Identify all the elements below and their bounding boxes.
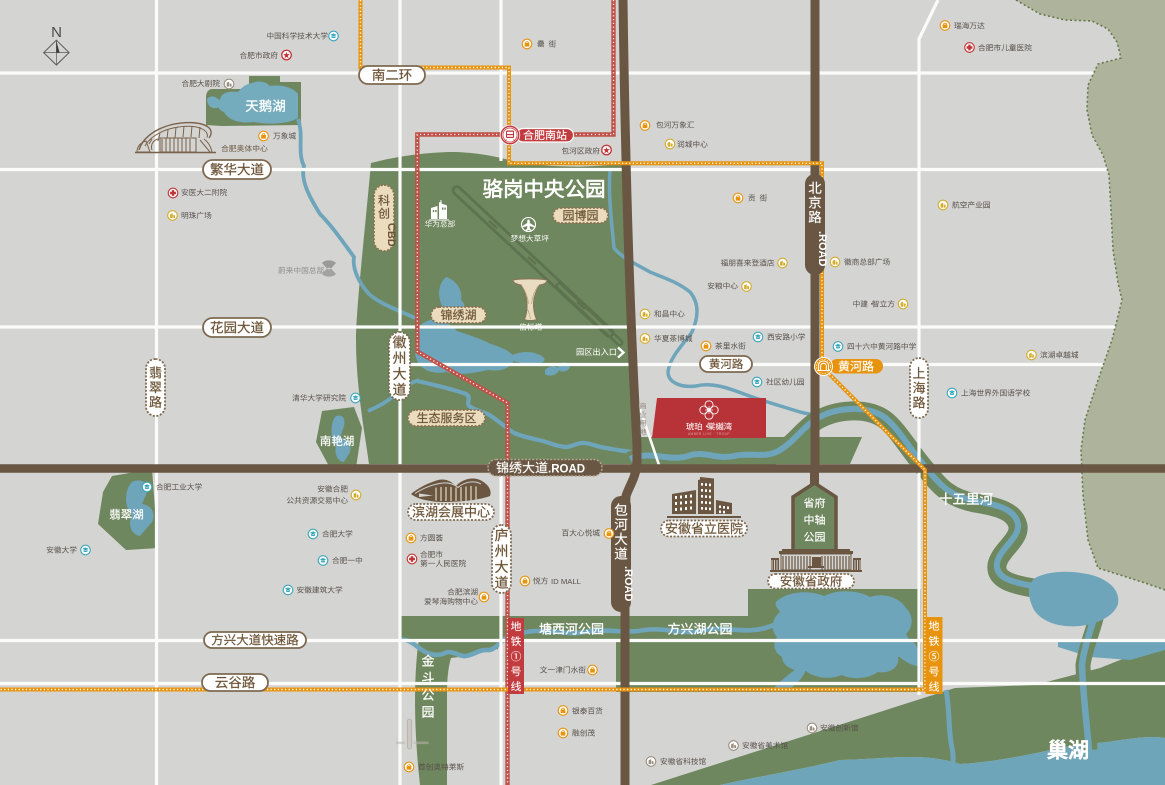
svg-text:AMBER LIVE · TROUP: AMBER LIVE · TROUP xyxy=(688,432,730,436)
svg-text:.ROAD: .ROAD xyxy=(548,463,585,475)
svg-text:.ROAD: .ROAD xyxy=(816,231,828,267)
svg-text:ID MALL: ID MALL xyxy=(551,577,582,586)
svg-text:N: N xyxy=(51,24,62,41)
svg-text:.ROAD: .ROAD xyxy=(622,566,634,602)
svg-text:CBD: CBD xyxy=(385,223,397,247)
